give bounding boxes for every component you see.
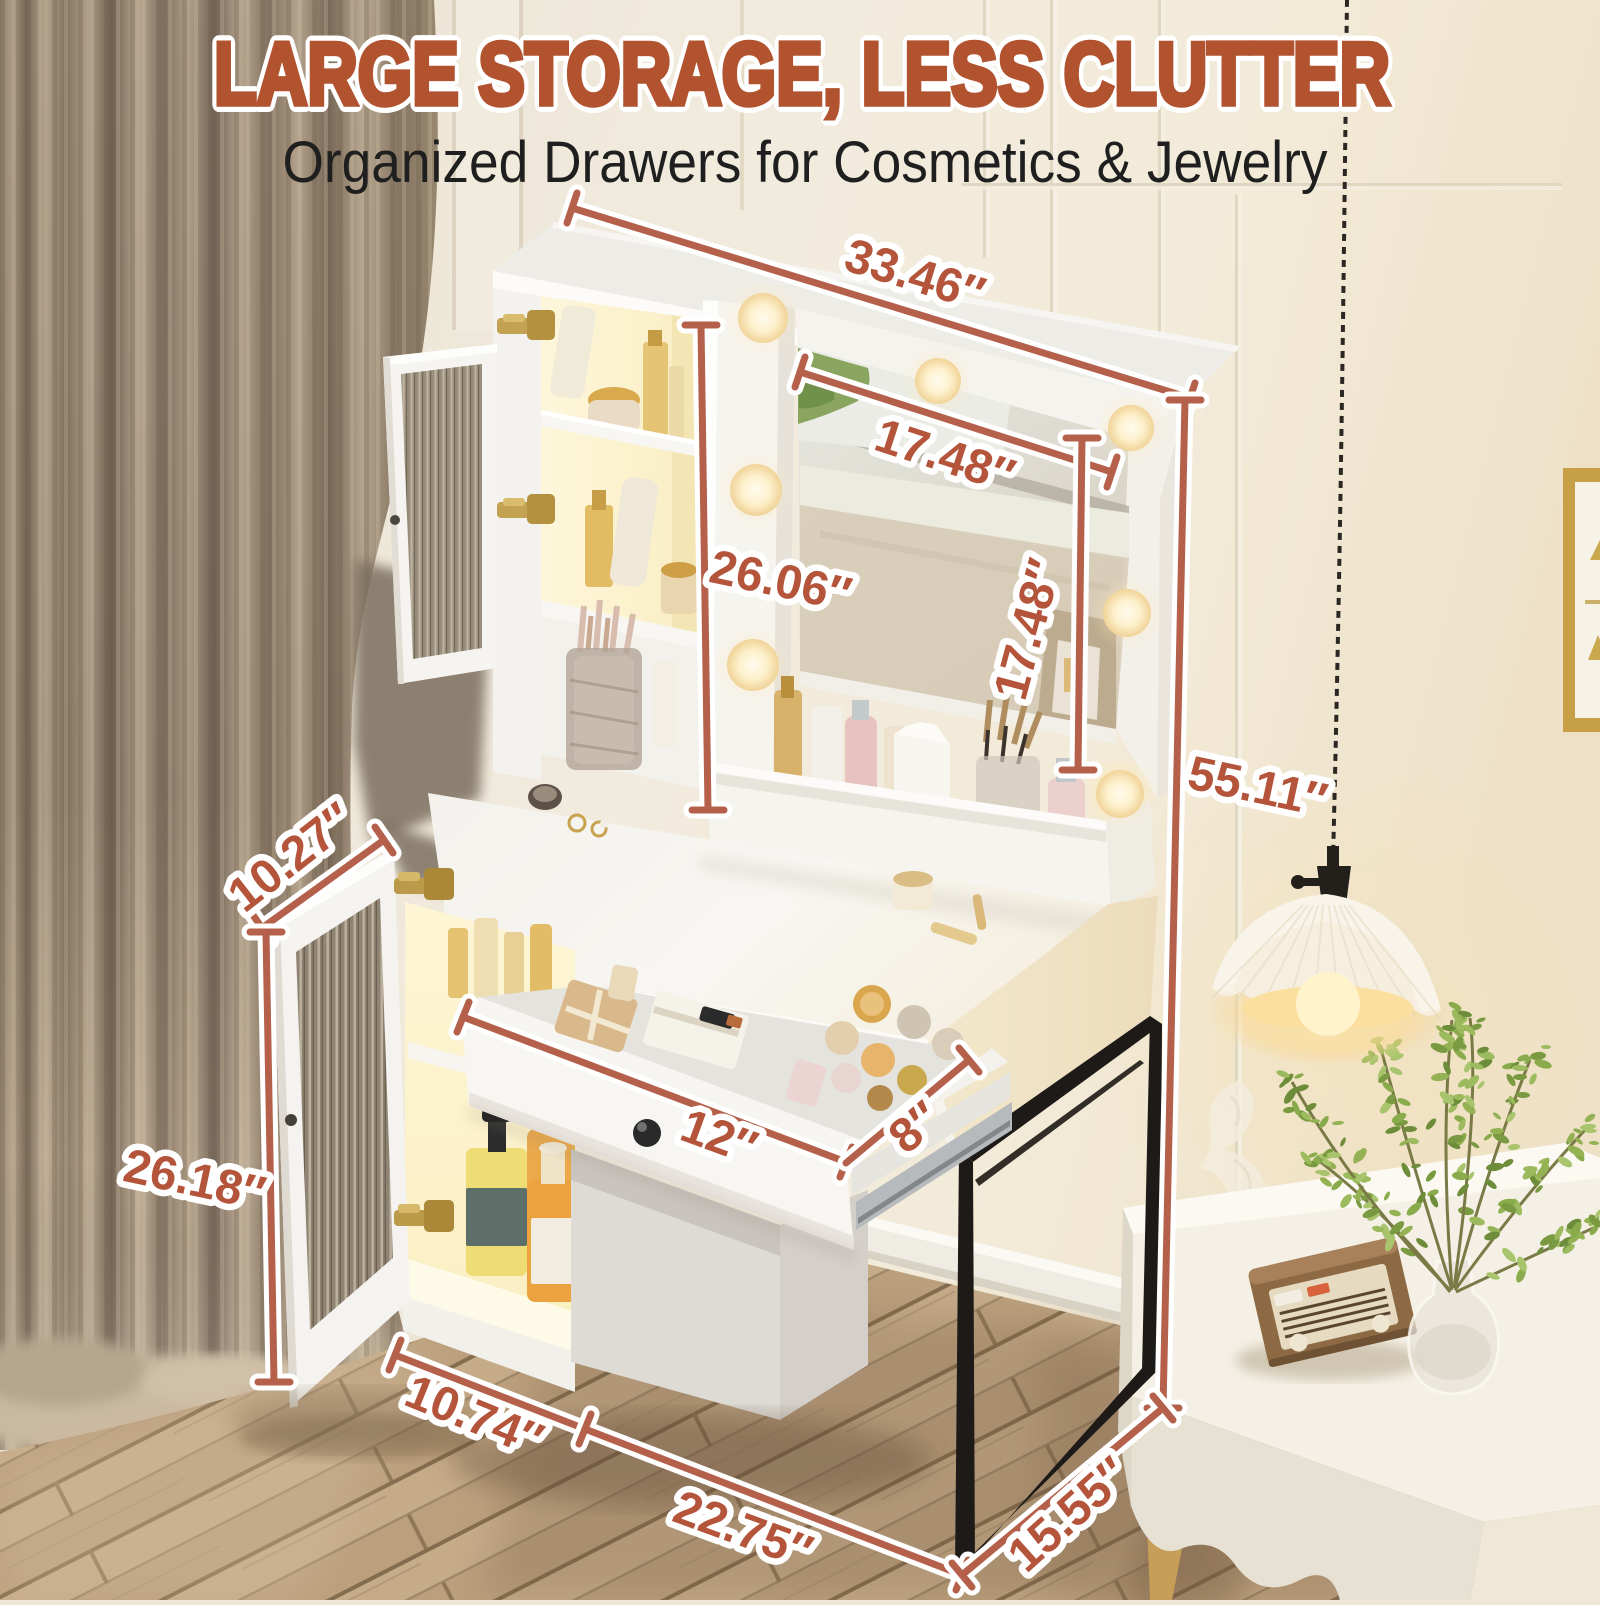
svg-text:Organized Drawers for Cosmetic: Organized Drawers for Cosmetics & Jewelr… [283,130,1328,195]
svg-text:LARGE STORAGE, LESS CLUTTER: LARGE STORAGE, LESS CLUTTER [214,24,1390,123]
